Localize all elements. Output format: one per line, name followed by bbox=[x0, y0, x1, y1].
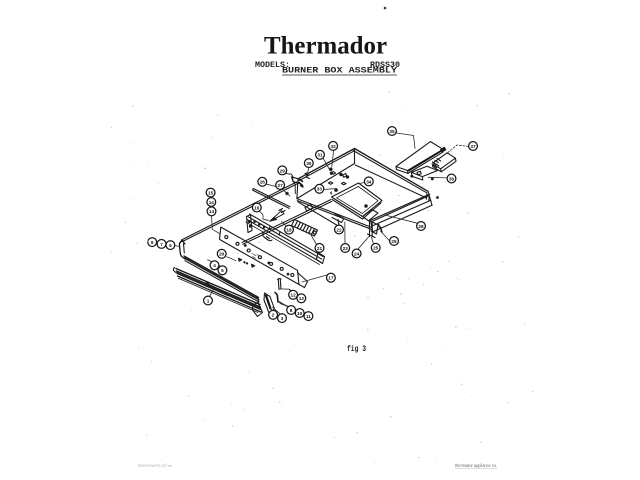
svg-text:4: 4 bbox=[213, 263, 216, 268]
svg-text:13: 13 bbox=[299, 296, 305, 301]
svg-text:20: 20 bbox=[219, 252, 225, 257]
svg-text:36: 36 bbox=[449, 176, 455, 181]
svg-text:BURNER BOX ASSEMBLY: BURNER BOX ASSEMBLY bbox=[282, 67, 397, 76]
svg-text:14: 14 bbox=[209, 209, 215, 214]
svg-text:12: 12 bbox=[290, 293, 296, 298]
svg-text:8: 8 bbox=[151, 240, 154, 245]
svg-text:26: 26 bbox=[260, 180, 266, 185]
svg-text:23: 23 bbox=[343, 246, 349, 251]
svg-text:11: 11 bbox=[306, 314, 311, 319]
svg-text:fig 3: fig 3 bbox=[347, 345, 366, 354]
svg-text:29: 29 bbox=[280, 168, 286, 173]
svg-text:14: 14 bbox=[209, 200, 215, 205]
svg-text:37: 37 bbox=[470, 144, 476, 149]
svg-text:27: 27 bbox=[277, 183, 283, 188]
svg-text:34: 34 bbox=[366, 179, 372, 184]
svg-text:3: 3 bbox=[281, 316, 284, 321]
svg-text:6: 6 bbox=[169, 243, 172, 248]
svg-text:7: 7 bbox=[160, 242, 163, 247]
svg-text:17: 17 bbox=[328, 276, 334, 281]
svg-text:5: 5 bbox=[221, 268, 224, 273]
svg-text:Thermador: Thermador bbox=[264, 33, 387, 60]
svg-text:24: 24 bbox=[354, 251, 360, 256]
svg-text:31: 31 bbox=[317, 153, 323, 158]
svg-text:25: 25 bbox=[391, 239, 397, 244]
svg-text:21: 21 bbox=[317, 246, 323, 251]
svg-text:2: 2 bbox=[272, 313, 275, 318]
svg-text:35: 35 bbox=[389, 129, 395, 134]
svg-text:10: 10 bbox=[297, 311, 303, 316]
svg-text:thermador appliance co.: thermador appliance co. bbox=[455, 463, 497, 468]
svg-text:RDSS30 PARTS LIST rev: RDSS30 PARTS LIST rev bbox=[138, 464, 172, 468]
svg-text:1: 1 bbox=[207, 298, 210, 303]
svg-text:32: 32 bbox=[330, 144, 336, 149]
svg-text:18: 18 bbox=[286, 228, 292, 233]
svg-text:33: 33 bbox=[317, 187, 323, 192]
svg-text:8: 8 bbox=[290, 308, 293, 313]
svg-text:15: 15 bbox=[208, 191, 214, 196]
svg-text:16: 16 bbox=[254, 205, 260, 210]
svg-text:30: 30 bbox=[306, 161, 312, 166]
svg-text:28: 28 bbox=[418, 224, 424, 229]
svg-text:25: 25 bbox=[373, 246, 379, 251]
svg-text:22: 22 bbox=[336, 227, 342, 232]
